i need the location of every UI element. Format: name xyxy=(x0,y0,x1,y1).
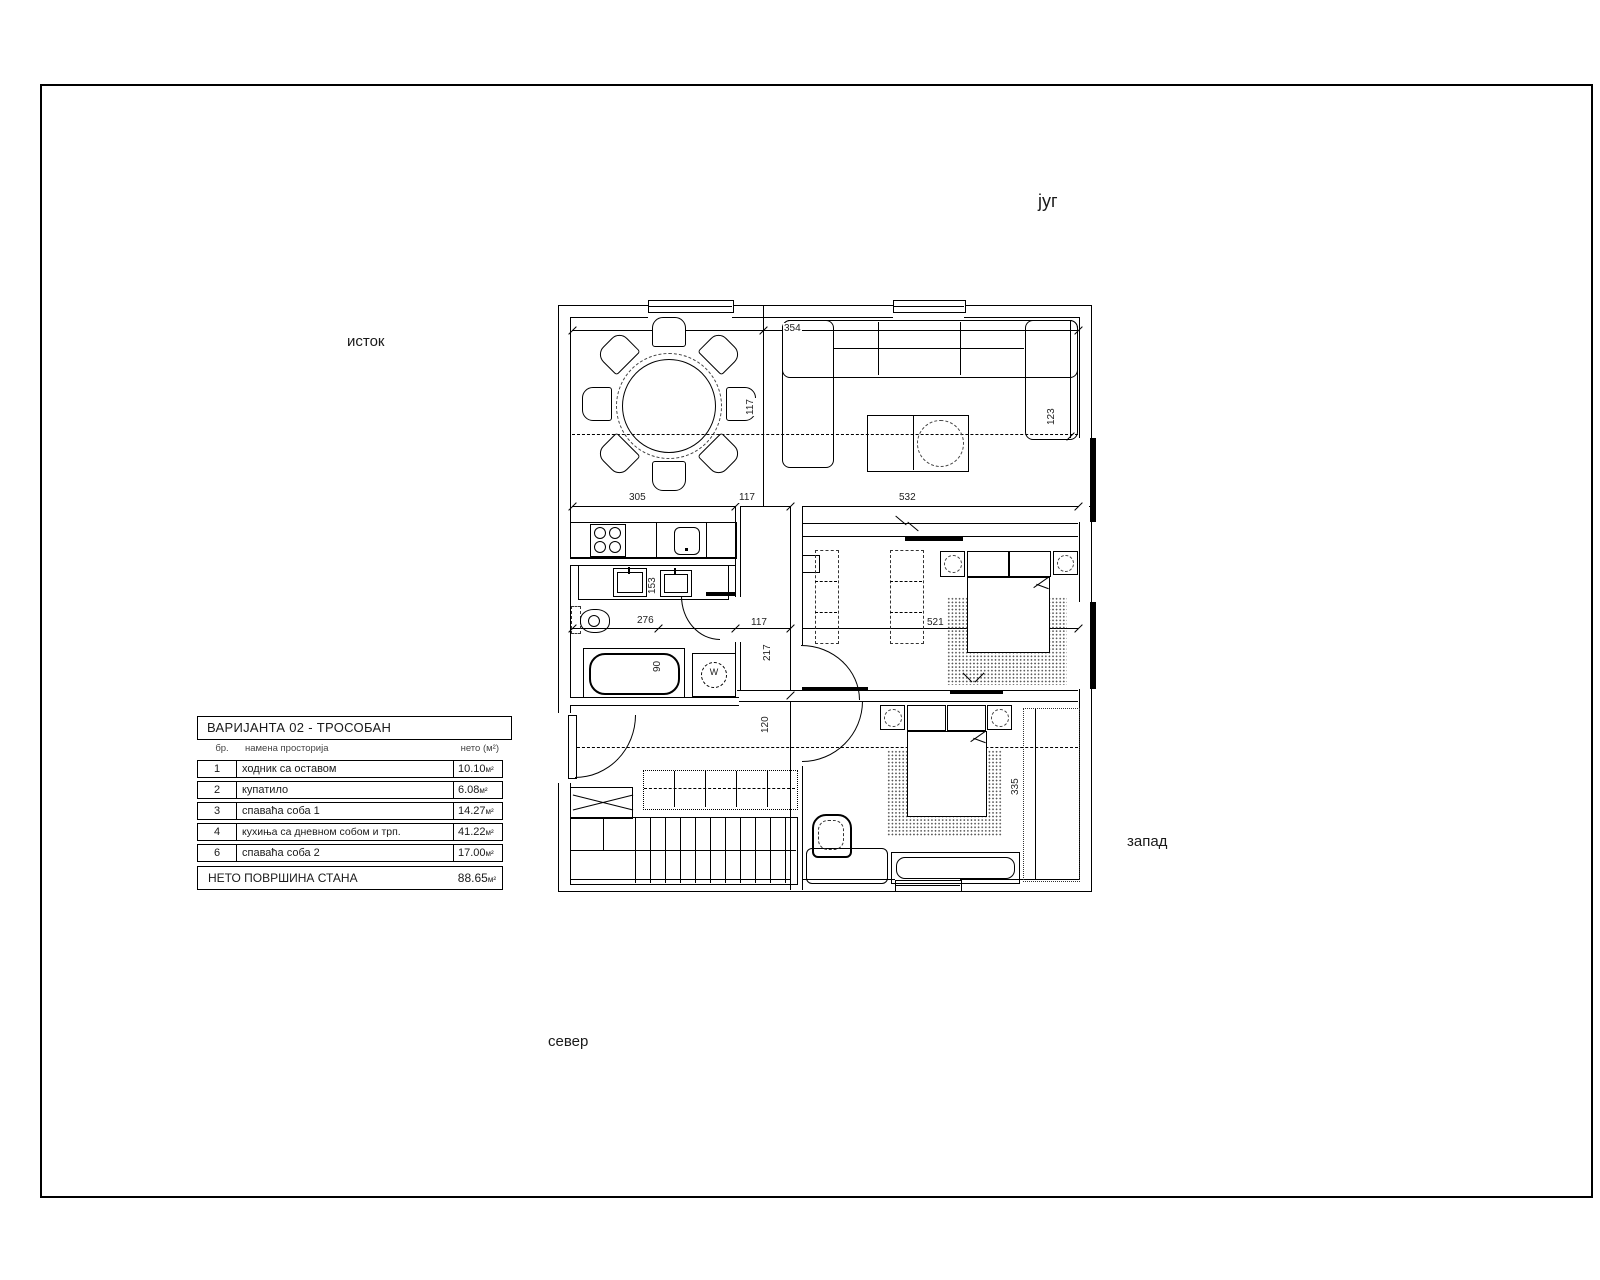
legend-col-name: намена просторија xyxy=(245,743,329,754)
room-name: спаваћа соба 1 xyxy=(242,803,320,819)
room-area: 17.00м² xyxy=(453,845,504,862)
room-name: кухиња са дневном собом и трп. xyxy=(242,824,401,840)
dimension-line xyxy=(572,506,1090,507)
room-name: ходник са оставом xyxy=(242,761,336,777)
dimension-label: 117 xyxy=(750,617,768,628)
room-area: 10.10м² xyxy=(453,761,504,778)
legend-row: 2 купатило 6.08м² xyxy=(197,781,503,799)
legend-col-area: нето (м²) xyxy=(461,743,499,754)
radiator xyxy=(905,537,963,541)
wall-bath-hall xyxy=(570,697,739,706)
room-name: спаваћа соба 2 xyxy=(242,845,320,861)
stair-treads xyxy=(635,817,636,883)
wardrobe xyxy=(1023,708,1080,882)
dimension-label: 117 xyxy=(745,398,756,416)
axis-line xyxy=(763,305,764,506)
window xyxy=(1090,602,1096,689)
stove-burner xyxy=(594,541,606,553)
pillow xyxy=(907,705,946,731)
legend-col-num: бр. xyxy=(209,743,235,754)
stairs xyxy=(570,817,798,885)
dimension-label: 117 xyxy=(738,492,756,503)
wardrobe xyxy=(815,550,839,644)
table-bowl xyxy=(917,420,964,467)
nightstand xyxy=(987,705,1012,730)
dimension-label: 354 xyxy=(783,323,802,334)
dimension-label: 521 xyxy=(926,617,945,628)
stair-landing-arrow xyxy=(570,787,633,819)
sofa-chaise-left xyxy=(782,320,834,468)
bed-1 xyxy=(967,577,1050,653)
bathtub-inner xyxy=(589,653,680,695)
wall-bedroom-left xyxy=(790,506,803,645)
room-number: 3 xyxy=(198,803,237,819)
dimension-label: 120 xyxy=(760,715,771,734)
legend-row: 6 спаваћа соба 2 17.00м² xyxy=(197,844,503,862)
total-area: 88.65м² xyxy=(458,867,496,891)
compass-east-label: исток xyxy=(347,333,385,350)
radiator xyxy=(950,690,1003,694)
dining-chair xyxy=(652,317,686,347)
washing-machine: W xyxy=(692,653,736,697)
dining-table-edge xyxy=(616,353,722,459)
drawing-sheet: југ исток запад север ВАРИЈАНТА 02 - ТРО… xyxy=(0,0,1600,1280)
door-leaf xyxy=(802,687,868,691)
legend-header: бр. намена просторија нето (м²) xyxy=(197,743,503,757)
legend-row: 3 спаваћа соба 1 14.27м² xyxy=(197,802,503,820)
dining-chair xyxy=(582,387,612,421)
total-label: НЕТО ПОВРШИНА СТАНА xyxy=(208,867,358,889)
legend-title: ВАРИЈАНТА 02 - ТРОСОБАН xyxy=(197,716,512,740)
room-area: 41.22м² xyxy=(453,824,504,841)
dimension-label: 153 xyxy=(647,576,658,595)
dining-chair xyxy=(652,461,686,491)
wardrobe xyxy=(890,550,924,644)
room-number: 2 xyxy=(198,782,237,798)
room-number: 1 xyxy=(198,761,237,777)
compass-west-label: запад xyxy=(1127,833,1167,850)
legend-row: 4 кухиња са дневном собом и трп. 41.22м² xyxy=(197,823,503,841)
window xyxy=(1090,438,1096,522)
nightstand xyxy=(940,551,965,577)
room-area: 14.27м² xyxy=(453,803,504,820)
stove-burner xyxy=(594,527,606,539)
floor-plan: W xyxy=(548,296,1108,908)
wall-living-bedroom1 xyxy=(802,523,1078,537)
nightstand xyxy=(1053,551,1078,575)
compass-south-label: југ xyxy=(1038,191,1058,212)
room-name: купатило xyxy=(242,782,288,798)
stove-burner xyxy=(609,527,621,539)
pillow xyxy=(1009,551,1051,577)
nightstand xyxy=(880,705,905,730)
compass-north-label: север xyxy=(548,1033,588,1050)
legend-total-row: НЕТО ПОВРШИНА СТАНА 88.65м² xyxy=(197,866,503,890)
pillow xyxy=(947,705,986,731)
dimension-label: 305 xyxy=(628,492,647,503)
dimension-label: 276 xyxy=(636,615,655,626)
pillow xyxy=(967,551,1009,577)
room-number: 6 xyxy=(198,845,237,861)
room-number: 4 xyxy=(198,824,237,840)
room-area: 6.08м² xyxy=(453,782,504,799)
dimension-label: 123 xyxy=(1046,407,1057,426)
legend-row: 1 ходник са оставом 10.10м² xyxy=(197,760,503,778)
dimension-label: 335 xyxy=(1010,777,1021,796)
bed-2 xyxy=(907,731,987,817)
dimension-label: 90 xyxy=(652,660,663,673)
stove-burner xyxy=(609,541,621,553)
dimension-label: 532 xyxy=(898,492,917,503)
washing-machine-label: W xyxy=(693,667,735,677)
hall-wardrobe xyxy=(643,770,798,810)
dimension-label: 217 xyxy=(762,643,773,662)
